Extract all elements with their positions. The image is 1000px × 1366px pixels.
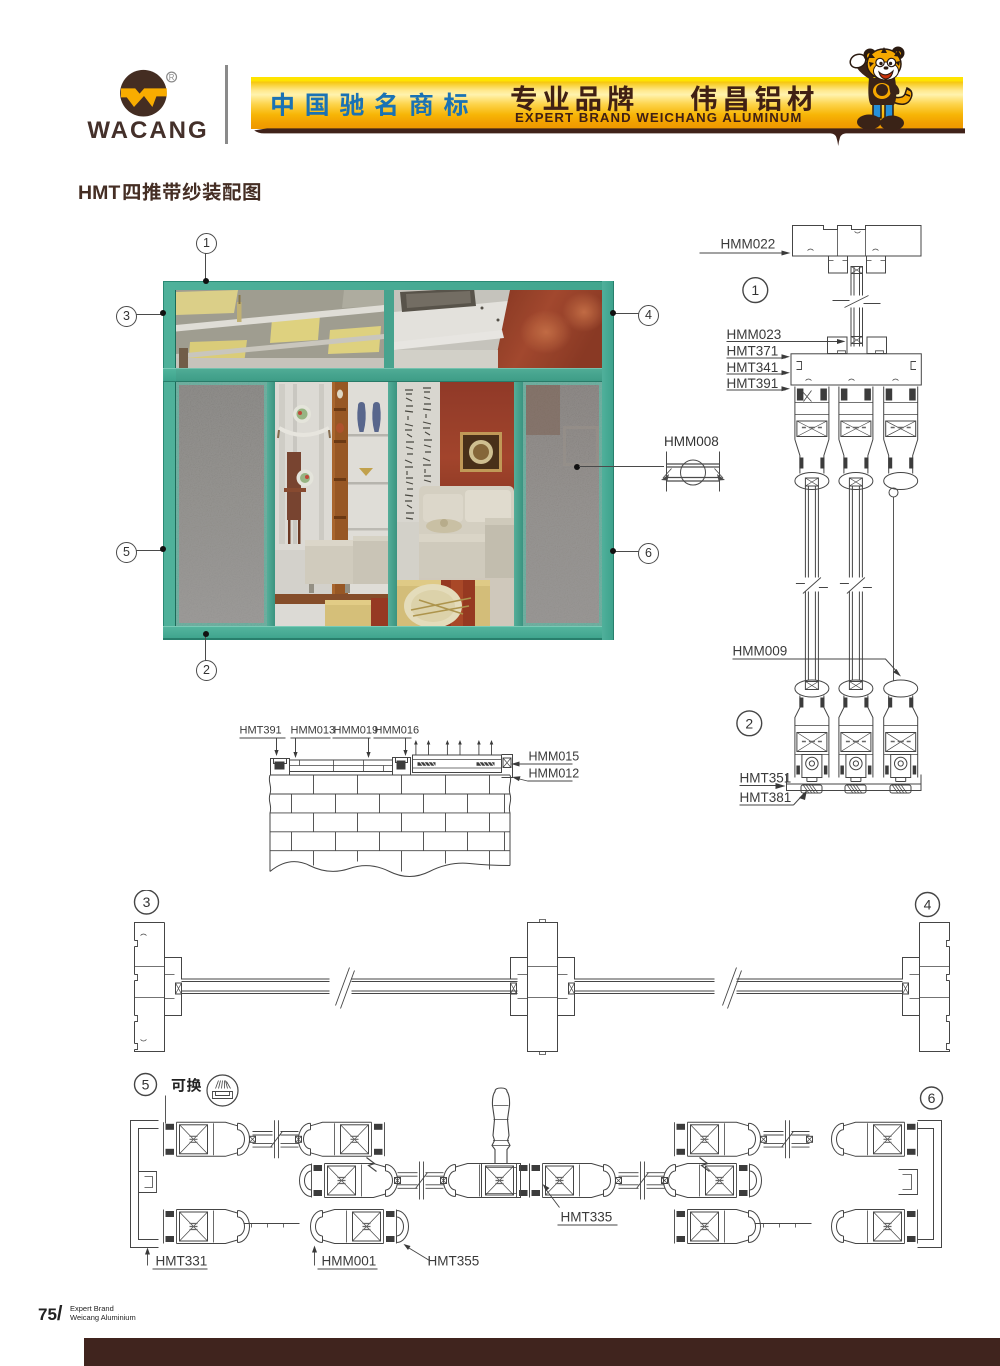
svg-text:HMM001: HMM001 [322,1254,377,1269]
svg-text:HMT331: HMT331 [156,1254,208,1269]
svg-text:HMT335: HMT335 [561,1210,613,1225]
svg-text:5: 5 [142,1077,150,1093]
svg-text:2: 2 [745,715,753,731]
svg-text:HMM009: HMM009 [733,644,788,659]
svg-text:3: 3 [143,894,151,910]
svg-text:HMM015: HMM015 [529,750,580,764]
svg-text:HMT351: HMT351 [740,771,792,786]
svg-text:HMT341: HMT341 [727,360,779,375]
svg-text:HMT391: HMT391 [240,725,282,737]
svg-text:R: R [169,73,175,82]
svg-text:6: 6 [928,1090,936,1106]
svg-text:HMM019: HMM019 [334,725,379,737]
svg-text:HMM016: HMM016 [375,725,420,737]
svg-text:HMM013: HMM013 [291,725,336,737]
svg-text:HMT381: HMT381 [740,790,792,805]
svg-text:4: 4 [924,897,932,913]
svg-text:HMM012: HMM012 [529,767,580,781]
svg-text:HMT371: HMT371 [727,344,779,359]
svg-text:HMM023: HMM023 [727,327,782,342]
svg-text:1: 1 [751,282,759,298]
svg-text:HMT391: HMT391 [727,376,779,391]
svg-text:HMT355: HMT355 [428,1254,480,1269]
svg-text:HMM022: HMM022 [721,237,776,252]
